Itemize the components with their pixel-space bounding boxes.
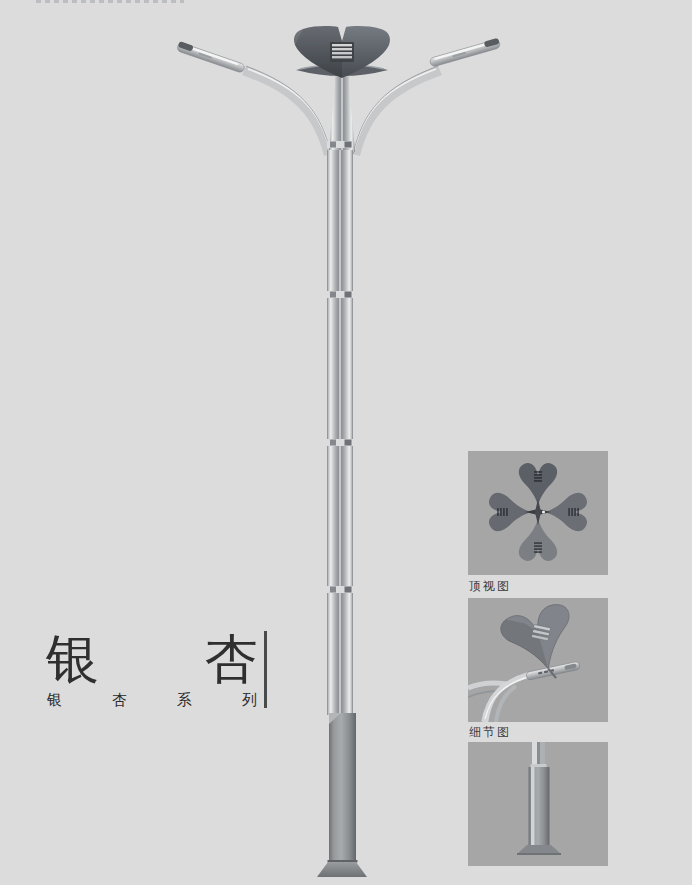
- lamp-head-left: [176, 41, 245, 73]
- subtitle-char: 银: [47, 691, 62, 710]
- lamp-arm-left: [242, 66, 331, 156]
- base-illustration: [468, 742, 608, 866]
- inset-detail-view: [468, 598, 608, 722]
- lamp-arm-right: [353, 66, 442, 156]
- title-divider-rule: [264, 631, 267, 708]
- lamp-head-right: [429, 38, 501, 67]
- inset-base-view: [468, 742, 608, 866]
- top-view-illustration: [468, 451, 608, 575]
- pole-base: [317, 713, 367, 877]
- lamp-neck: [329, 72, 355, 152]
- title-char: 杏: [205, 630, 258, 688]
- catalog-page: 银 杏 银 杏 系 列: [0, 0, 692, 885]
- subtitle-char: 系: [177, 691, 192, 710]
- subtitle-char: 杏: [112, 691, 127, 710]
- detail-illustration: [468, 598, 608, 722]
- inset-top-view: [468, 451, 608, 575]
- top-view-label: 顶视图: [469, 578, 609, 595]
- crown-louvers: [330, 42, 354, 62]
- title-char: 银: [46, 630, 99, 688]
- detail-label: 细节图: [469, 724, 609, 741]
- series-title: 银 杏: [46, 630, 258, 688]
- lamp-pole: [327, 150, 353, 715]
- series-subtitle: 银 杏 系 列: [47, 691, 257, 710]
- subtitle-char: 列: [242, 691, 257, 710]
